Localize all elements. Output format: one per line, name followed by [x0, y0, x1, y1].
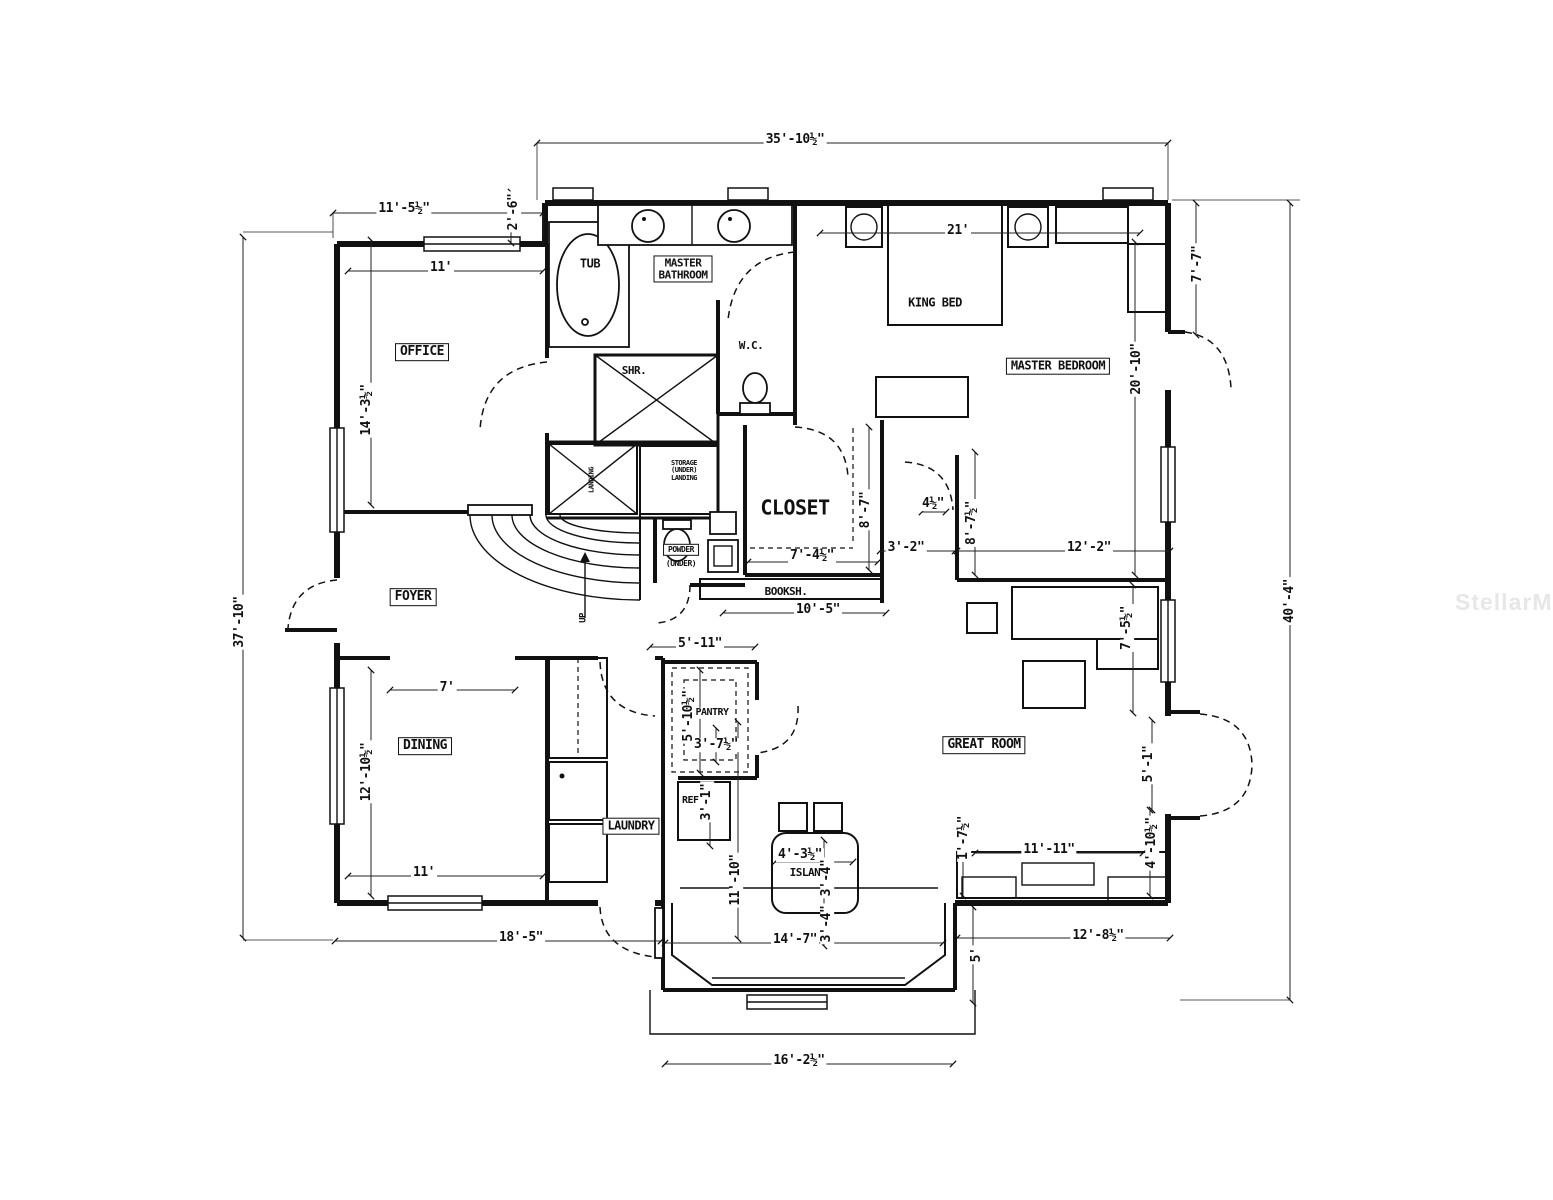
bay-window	[650, 903, 975, 1034]
dimension-label: 37'-10"	[233, 594, 247, 649]
dimension-label: 1'-7½"	[957, 814, 971, 862]
master-bath-fixtures	[549, 205, 792, 445]
dimension-label: 7'-4½"	[788, 549, 836, 563]
dimension-label: 4'-10½"	[1145, 815, 1159, 870]
dimension-label: 5'-11"	[676, 637, 724, 651]
room-label: PANTRY	[695, 708, 728, 719]
fixture-label: KING BED	[908, 297, 962, 310]
dimension-label: 2'-6"	[507, 192, 521, 233]
fixture-label: W.C.	[739, 340, 764, 352]
fixture-label: LANDING	[588, 467, 595, 493]
dimension-label: 35'-10½"	[764, 133, 827, 147]
fixture-label: TUB	[580, 258, 600, 271]
room-label: MASTER BEDROOM	[1006, 358, 1110, 375]
stairs	[468, 505, 640, 618]
dimension-label: 3'-7½"	[692, 738, 740, 752]
balcony-door-arc	[1185, 332, 1231, 388]
dimension-label: 11'-5½"	[376, 202, 431, 216]
dimension-label: 5'-10½"	[682, 688, 696, 743]
dimension-label: 8'-7"	[859, 490, 873, 531]
dimension-label: 7'	[438, 681, 457, 695]
washer	[549, 762, 607, 820]
interior-walls	[285, 203, 1200, 903]
dimension-label: 3'-4"	[820, 904, 834, 945]
sofa	[1012, 587, 1158, 639]
watermark: StellarMLS	[1455, 589, 1553, 616]
dimension-label: 7'-7"	[1191, 244, 1205, 285]
dimension-label: 11'	[428, 261, 454, 275]
side-table	[967, 603, 997, 633]
laundry-appliances	[549, 658, 607, 882]
dimension-label: 12'-10½"	[360, 741, 374, 804]
dimension-label: 11'-10"	[729, 852, 743, 907]
exterior-walls	[337, 203, 1168, 990]
dimension-label: 7'-5½"	[1120, 604, 1134, 652]
fixture-label: BOOKSH.	[765, 586, 808, 598]
coffee-table	[1023, 661, 1085, 708]
pantry-door-arc	[757, 706, 798, 753]
powder-sink	[710, 512, 736, 534]
dimension-label: 3'-2"	[886, 541, 927, 555]
dimension-label: 12'-2"	[1065, 541, 1113, 555]
french-door-arc	[1200, 766, 1252, 816]
sink	[718, 210, 750, 242]
nightstand	[1008, 207, 1048, 247]
dimension-label: 3'-4"	[820, 858, 834, 899]
dimension-label: 18'-5"	[497, 931, 545, 945]
dimension-label: 21'	[945, 224, 971, 238]
french-door-arc	[1200, 714, 1252, 764]
laundry-door-arc	[600, 662, 655, 716]
stool	[814, 803, 842, 831]
fixture-label: UP	[579, 613, 588, 623]
armoire	[1128, 244, 1168, 312]
dimension-label: 12'-8½"	[1070, 929, 1125, 943]
floorplan: OFFICEMASTER BATHROOMFOYERDININGLAUNDRYG…	[0, 0, 1553, 1200]
fixture-label: (UNDER)	[666, 560, 696, 568]
dimension-label: 16'-2½"	[771, 1054, 826, 1068]
dimension-label: 40'-4"	[1283, 577, 1297, 625]
dresser	[876, 377, 968, 417]
wc-toilet	[743, 373, 767, 403]
dimension-label: 11'	[411, 866, 437, 880]
built-in	[957, 852, 1169, 898]
garage-door-arc	[600, 907, 655, 957]
sink	[632, 210, 664, 242]
dimension-label: 14'-3½"	[360, 382, 374, 437]
closet-door-arc	[795, 427, 848, 477]
bath-door-arc	[728, 252, 795, 320]
room-label: FOYER	[390, 588, 437, 606]
fixture-label: SHR.	[622, 365, 647, 377]
dimension-label: 4½"	[920, 497, 946, 511]
dimension-label: 10'-5"	[794, 603, 842, 617]
room-label: DINING	[398, 737, 452, 755]
entry-door-arc	[288, 580, 337, 628]
dimension-label: 20'-10"	[1130, 341, 1144, 396]
dimension-label: 4'-3½"	[776, 848, 824, 862]
room-label: LAUNDRY	[602, 818, 659, 835]
dryer	[549, 824, 607, 882]
dimension-label: 5'	[970, 946, 984, 965]
dimension-label: 8'-7½"	[965, 499, 979, 547]
dimension-label: 3'-1"	[700, 782, 714, 823]
room-label: OFFICE	[395, 343, 449, 361]
vanity	[598, 205, 792, 245]
room-label: GREAT ROOM	[942, 736, 1025, 754]
dresser	[1056, 207, 1128, 243]
dimension-label: 11'-11"	[1021, 843, 1076, 857]
room-label: CLOSET	[760, 498, 829, 519]
stool	[779, 803, 807, 831]
bedroom-furniture	[846, 205, 1168, 417]
fixture-label: POWDER	[663, 544, 699, 556]
room-label: MASTER BATHROOM	[654, 255, 713, 282]
office-door-arc	[480, 362, 547, 430]
dimension-label: 5'-1"	[1142, 744, 1156, 785]
dimension-label: 14'-7"	[771, 933, 819, 947]
powder-door-arc	[657, 585, 690, 623]
fixture-label: STORAGE (UNDER) LANDING	[671, 460, 697, 482]
